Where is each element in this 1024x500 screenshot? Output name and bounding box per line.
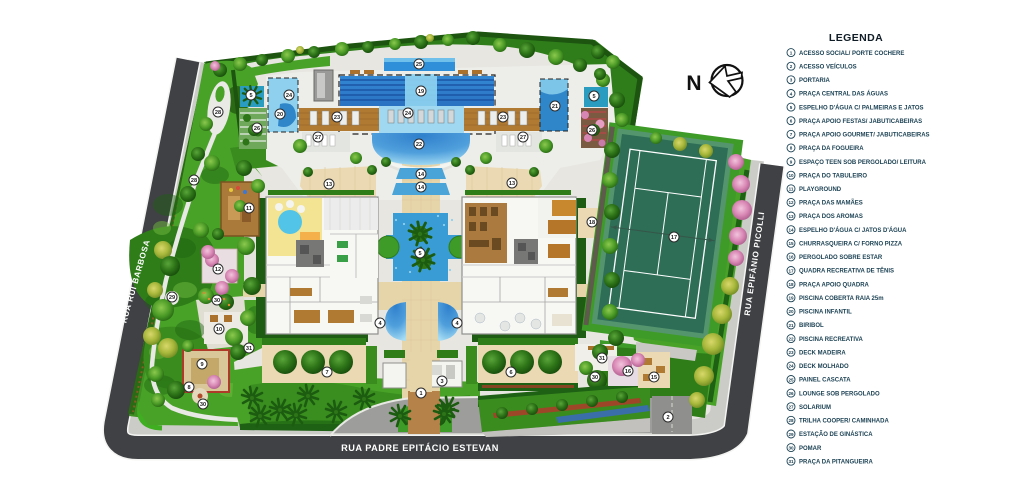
svg-text:15: 15 (651, 375, 657, 381)
svg-text:18: 18 (589, 220, 595, 226)
svg-text:SOLARIUM: SOLARIUM (799, 405, 831, 411)
svg-text:RUA PADRE EPITÁCIO ESTEVAN: RUA PADRE EPITÁCIO ESTEVAN (341, 442, 499, 453)
svg-text:24: 24 (788, 364, 794, 369)
svg-text:PRAÇA DOS AROMAS: PRAÇA DOS AROMAS (799, 214, 863, 220)
svg-text:29: 29 (169, 295, 175, 301)
svg-text:5: 5 (249, 93, 252, 99)
svg-text:23: 23 (788, 350, 794, 355)
svg-text:12: 12 (215, 267, 221, 273)
svg-text:24: 24 (405, 111, 412, 117)
svg-text:22: 22 (788, 336, 794, 341)
svg-text:14: 14 (418, 172, 425, 178)
svg-text:5: 5 (790, 105, 793, 110)
svg-text:6: 6 (509, 370, 512, 376)
svg-text:2: 2 (790, 64, 793, 69)
svg-text:24: 24 (286, 93, 293, 99)
svg-text:27: 27 (788, 405, 794, 410)
svg-text:18: 18 (788, 282, 794, 287)
svg-text:PRAÇA APOIO FESTAS/ JABUTICABE: PRAÇA APOIO FESTAS/ JABUTICABEIRAS (799, 119, 922, 125)
svg-text:14: 14 (788, 228, 794, 233)
svg-text:ESPELHO D'ÁGUA C/ JATOS D'ÁGUA: ESPELHO D'ÁGUA C/ JATOS D'ÁGUA (799, 227, 907, 234)
svg-text:1: 1 (790, 50, 793, 55)
svg-text:16: 16 (788, 255, 794, 260)
svg-text:LOUNGE SOB PERGOLADO: LOUNGE SOB PERGOLADO (799, 391, 880, 397)
svg-text:6: 6 (790, 119, 793, 124)
svg-text:31: 31 (246, 346, 252, 352)
svg-text:30: 30 (214, 298, 220, 304)
svg-text:27: 27 (520, 135, 526, 141)
svg-text:4: 4 (790, 91, 793, 96)
svg-text:PRAÇA APOIO GOURMET/ JABUTICAB: PRAÇA APOIO GOURMET/ JABUTICABEIRAS (799, 133, 930, 139)
svg-text:7: 7 (325, 370, 328, 376)
svg-text:PLAYGROUND: PLAYGROUND (799, 187, 842, 193)
svg-text:PRAÇA CENTRAL DAS ÁGUAS: PRAÇA CENTRAL DAS ÁGUAS (799, 91, 888, 98)
svg-text:13: 13 (326, 182, 332, 188)
svg-text:PISCINA RECREATIVA: PISCINA RECREATIVA (799, 337, 864, 343)
svg-text:5: 5 (418, 251, 421, 257)
svg-text:LEGENDA: LEGENDA (829, 32, 883, 44)
svg-text:11: 11 (789, 187, 794, 192)
svg-text:CHURRASQUEIRA C/ FORNO PIZZA: CHURRASQUEIRA C/ FORNO PIZZA (799, 242, 903, 248)
svg-text:PISCINA INFANTIL: PISCINA INFANTIL (799, 310, 852, 316)
svg-text:ACESSO VEÍCULOS: ACESSO VEÍCULOS (799, 62, 857, 70)
svg-text:28: 28 (191, 178, 197, 184)
svg-text:9: 9 (200, 362, 203, 368)
svg-text:10: 10 (788, 173, 794, 178)
svg-text:25: 25 (788, 377, 794, 382)
svg-text:PRAÇA DAS MAMÃES: PRAÇA DAS MAMÃES (799, 200, 863, 207)
svg-text:26: 26 (589, 128, 595, 134)
svg-text:N: N (686, 72, 701, 95)
svg-text:PRAÇA DO TABULEIRO: PRAÇA DO TABULEIRO (799, 173, 867, 179)
svg-text:13: 13 (509, 181, 515, 187)
svg-text:PAINEL CASCATA: PAINEL CASCATA (799, 378, 851, 384)
svg-text:30: 30 (592, 375, 598, 381)
svg-text:QUADRA RECREATIVA DE TÊNIS: QUADRA RECREATIVA DE TÊNIS (799, 267, 894, 275)
svg-text:17: 17 (788, 268, 794, 273)
svg-text:31: 31 (788, 459, 794, 464)
svg-text:TRILHA COOPER/ CAMINHADA: TRILHA COOPER/ CAMINHADA (799, 419, 889, 425)
svg-text:3: 3 (440, 379, 443, 385)
svg-text:20: 20 (788, 309, 794, 314)
svg-text:POMAR: POMAR (799, 446, 822, 452)
svg-text:5: 5 (592, 94, 595, 100)
svg-text:PRAÇA DA FOGUEIRA: PRAÇA DA FOGUEIRA (799, 146, 864, 152)
svg-text:10: 10 (216, 327, 222, 333)
svg-text:8: 8 (790, 146, 793, 151)
svg-text:23: 23 (334, 115, 340, 121)
svg-text:29: 29 (788, 432, 794, 437)
svg-text:ESPELHO D'ÁGUA C/ PALMEIRAS E: ESPELHO D'ÁGUA C/ PALMEIRAS E JATOS (799, 104, 924, 111)
svg-text:30: 30 (200, 402, 206, 408)
svg-text:23: 23 (500, 115, 506, 121)
svg-text:ACESSO SOCIAL/ PORTE COCHERE: ACESSO SOCIAL/ PORTE COCHERE (799, 51, 904, 57)
svg-text:19: 19 (788, 296, 794, 301)
svg-text:ESTAÇÃO DE GINÁSTICA: ESTAÇÃO DE GINÁSTICA (799, 431, 873, 438)
svg-text:16: 16 (625, 369, 631, 375)
svg-text:PORTARIA: PORTARIA (799, 78, 831, 84)
svg-text:7: 7 (790, 132, 793, 137)
svg-text:22: 22 (416, 142, 422, 148)
svg-text:11: 11 (246, 206, 252, 212)
svg-text:21: 21 (788, 323, 794, 328)
svg-text:ESPAÇO TEEN SOB PERGOLADO/ LEI: ESPAÇO TEEN SOB PERGOLADO/ LEITURA (799, 160, 927, 166)
svg-text:1: 1 (419, 391, 422, 397)
svg-text:13: 13 (788, 214, 794, 219)
svg-text:2: 2 (666, 415, 669, 421)
svg-text:25: 25 (416, 62, 422, 68)
svg-text:DECK MADEIRA: DECK MADEIRA (799, 350, 846, 356)
svg-text:17: 17 (671, 235, 677, 241)
svg-text:9: 9 (790, 159, 793, 164)
svg-text:14: 14 (418, 185, 425, 191)
svg-text:8: 8 (187, 385, 190, 391)
svg-text:PRAÇA DA PITANGUEIRA: PRAÇA DA PITANGUEIRA (799, 459, 873, 465)
svg-text:20: 20 (277, 112, 283, 118)
svg-text:PERGOLADO SOBRE ESTAR: PERGOLADO SOBRE ESTAR (799, 255, 883, 261)
svg-text:19: 19 (418, 89, 424, 95)
svg-text:28: 28 (788, 418, 794, 423)
svg-text:PRAÇA APOIO QUADRA: PRAÇA APOIO QUADRA (799, 282, 870, 288)
svg-text:BIRIBOL: BIRIBOL (799, 323, 824, 329)
svg-text:12: 12 (788, 200, 794, 205)
svg-text:21: 21 (552, 104, 558, 110)
svg-text:27: 27 (315, 135, 321, 141)
svg-text:DECK MOLHADO: DECK MOLHADO (799, 364, 849, 370)
svg-text:30: 30 (788, 445, 794, 450)
svg-text:26: 26 (788, 391, 794, 396)
svg-text:PISCINA COBERTA RAIA 25m: PISCINA COBERTA RAIA 25m (799, 296, 884, 302)
svg-text:3: 3 (790, 78, 793, 83)
svg-text:31: 31 (599, 356, 605, 362)
svg-text:15: 15 (788, 241, 794, 246)
svg-text:26: 26 (254, 126, 260, 132)
svg-text:28: 28 (215, 110, 221, 116)
